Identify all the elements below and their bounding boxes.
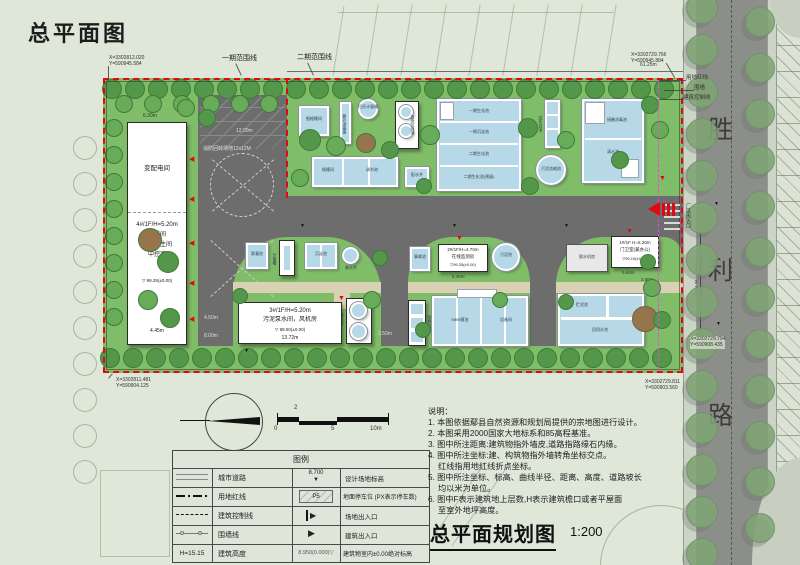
existing-tree-outline	[73, 244, 97, 268]
tree-icon	[745, 329, 775, 359]
legend-grid	[172, 487, 430, 488]
note-line: 均以米为单位。	[428, 483, 698, 494]
coord-y: Y=590903.560	[645, 385, 680, 391]
coord-y: Y=590904.125	[116, 383, 151, 389]
leader-line	[307, 62, 314, 75]
site-entry-symbol-bar	[306, 510, 308, 521]
tree-icon	[686, 244, 718, 276]
tree-icon	[686, 286, 718, 318]
control-line-tag: 建筑控制线	[683, 96, 711, 102]
entrance-bar	[667, 203, 670, 216]
elevation-symbol-text: 8.700	[292, 470, 340, 476]
drawing-title: 总平面规划图	[430, 518, 556, 551]
entrance-label: 厂区出入口	[685, 203, 692, 228]
entrance-arrow-small: ▼	[659, 175, 666, 182]
scalebar-block	[277, 417, 299, 421]
existing-tree-outline	[73, 280, 97, 304]
survey-line	[468, 4, 480, 75]
tree-icon	[686, 370, 718, 402]
legend-grid	[172, 544, 430, 545]
tree-icon	[686, 496, 718, 528]
survey-line	[536, 4, 548, 75]
notes-block: 说明： 1. 本图依据鄢县自然资源和规划局提供的宗地图进行设计。 2. 本图采用…	[428, 406, 698, 516]
building-entry-symbol: ▶	[308, 528, 315, 539]
leader-line	[660, 80, 686, 81]
scalebar-block	[337, 417, 388, 421]
tree-icon	[745, 467, 775, 497]
coord-top-right: X=3302729.766 Y=590945.884	[631, 52, 666, 65]
existing-tree-outline	[73, 424, 97, 448]
survey-line	[400, 4, 412, 75]
scalebar-tick	[388, 413, 389, 425]
tree-icon	[745, 283, 775, 313]
phase2-line-label: 二期范围线	[297, 52, 332, 62]
page-title: 总平面图	[28, 16, 128, 48]
note-line: 2. 本图采用2000国家大地标系和85高程基准。	[428, 428, 698, 439]
tree-icon	[686, 118, 718, 150]
coord-y: Y=590908.435	[690, 342, 725, 348]
tree-icon	[686, 34, 718, 66]
existing-tree-outline	[73, 136, 97, 160]
legend-title: 图例	[172, 454, 430, 465]
phase-divider-red-line	[286, 78, 288, 198]
legend-desc: 地面停车位 (PX表示停车数)	[343, 492, 417, 501]
note-line: 4. 图中所注坐标:建、构筑物指外墙转角坐标交点。	[428, 450, 698, 461]
survey-line	[502, 4, 514, 75]
building-control-line-magenta	[658, 80, 659, 371]
notes-title: 说明：	[428, 406, 698, 417]
survey-line	[604, 4, 616, 75]
legend-grid	[172, 525, 430, 526]
red-line-boundary	[103, 78, 683, 373]
survey-line	[570, 4, 582, 75]
note-line: 6. 图中F表示建筑地上层数,H表示建筑檐口或者平屋面	[428, 494, 698, 505]
survey-line	[338, 12, 614, 13]
entrance-bar	[672, 203, 675, 216]
tree-icon	[745, 191, 775, 221]
wall-line-dot	[180, 531, 184, 535]
legend-label: 用地红线	[218, 492, 246, 502]
scalebar-label-2: 2	[294, 405, 297, 411]
legend-label: 围墙线	[218, 530, 239, 540]
legend-grid	[172, 468, 430, 469]
tree-icon	[745, 99, 775, 129]
scalebar-block	[299, 421, 337, 425]
red-line-tag: 用地红线	[686, 76, 708, 82]
tree-icon	[686, 412, 718, 444]
elevation-symbol-triangle: ▼	[292, 477, 340, 483]
note-line: 红线指用地红线折点坐标。	[428, 461, 698, 472]
existing-tree-outline	[73, 388, 97, 412]
scalebar-label-10m: 10m	[370, 426, 382, 432]
leader-line	[235, 63, 241, 75]
existing-tree-outline	[73, 316, 97, 340]
legend-desc: 场地出入口	[345, 511, 378, 521]
existing-tree-outline	[73, 172, 97, 196]
site-entry-symbol-arrow: ▶	[310, 510, 316, 521]
top-dimension-line	[287, 71, 683, 72]
drawing-scale: 1:200	[570, 524, 603, 539]
scalebar-label-0: 0	[274, 426, 277, 432]
fence-tag: 围墙	[694, 86, 705, 92]
leader-line	[664, 90, 694, 91]
red-line-symbol	[176, 495, 208, 497]
entrance-arrow-icon	[648, 202, 660, 216]
tree-icon	[745, 7, 775, 37]
coord-top-left: X=3302812.020 Y=590945.584	[109, 55, 144, 68]
tree-icon	[686, 160, 718, 192]
entrance-bar	[662, 203, 665, 216]
survey-line	[434, 4, 446, 75]
legend-desc: 设计场地标高	[345, 473, 384, 483]
wall-line-dot	[198, 531, 202, 535]
abs-elevation-symbol: 8.950(0.000)▽	[292, 550, 340, 556]
north-arrow-needle	[208, 417, 260, 425]
tree-icon	[745, 421, 775, 451]
coord-bottom-right: X=3302729.811 Y=590903.560	[645, 379, 680, 392]
city-road-symbol	[176, 474, 208, 480]
scalebar-tick	[277, 413, 278, 425]
legend-label: 城市道路	[218, 473, 246, 483]
coord-y: Y=590945.884	[631, 58, 666, 64]
legend-label: 建筑高度	[218, 549, 246, 559]
tree-icon	[745, 53, 775, 83]
note-line: 1. 本图依据鄢县自然资源和规划局提供的宗地图进行设计。	[428, 417, 698, 428]
existing-tree-outline	[73, 352, 97, 376]
tree-icon	[745, 145, 775, 175]
scalebar-label-5: 5	[331, 426, 334, 432]
tree-icon	[686, 538, 718, 565]
note-line: 3. 图中所注距离:建筑物指外墙皮,道路指路缘石内缘。	[428, 439, 698, 450]
parking-symbol: P5	[299, 490, 333, 503]
tree-icon	[745, 237, 775, 267]
elevation-marker: ▼	[714, 202, 719, 207]
leader-line	[108, 66, 109, 78]
survey-parcel-outline	[100, 470, 170, 557]
note-line: 至室外地坪高度。	[428, 505, 698, 516]
coord-y: Y=590945.584	[109, 61, 144, 67]
height-symbol-text: H=15.15	[172, 550, 212, 557]
legend-grid	[212, 468, 213, 563]
legend-desc: 建筑出入口	[345, 530, 378, 540]
site-plan-sheet: 总平面图 胜 利 路 ▼ ▼ 42.03m P2 12.00m 消防回转场地12…	[0, 0, 800, 565]
legend-grid	[172, 506, 430, 507]
leader-line	[108, 373, 113, 378]
survey-line	[366, 4, 378, 75]
legend-label: 建筑控制线	[218, 511, 253, 521]
leader-line	[659, 99, 683, 100]
coord-mid-right: X=3302729.794 Y=590908.435	[690, 336, 725, 349]
phase1-line-label: 一期范围线	[222, 53, 257, 63]
tree-icon	[745, 513, 775, 543]
existing-tree-outline	[73, 460, 97, 484]
legend-grid	[340, 468, 341, 563]
north-arrow-tail	[180, 420, 210, 421]
tree-icon	[686, 454, 718, 486]
control-line-symbol	[176, 514, 208, 515]
elevation-marker: ▼	[716, 322, 721, 327]
coord-bottom-left: X=3302811.481 Y=590904.125	[116, 377, 151, 390]
note-line: 5. 图中所注坐标、标高、曲线半径、距离、高度、道路坡长	[428, 472, 698, 483]
tree-icon	[745, 375, 775, 405]
existing-tree-outline	[73, 208, 97, 232]
survey-line	[333, 6, 345, 75]
legend-desc: 建筑物室内±0.00绝对标高	[343, 549, 412, 558]
